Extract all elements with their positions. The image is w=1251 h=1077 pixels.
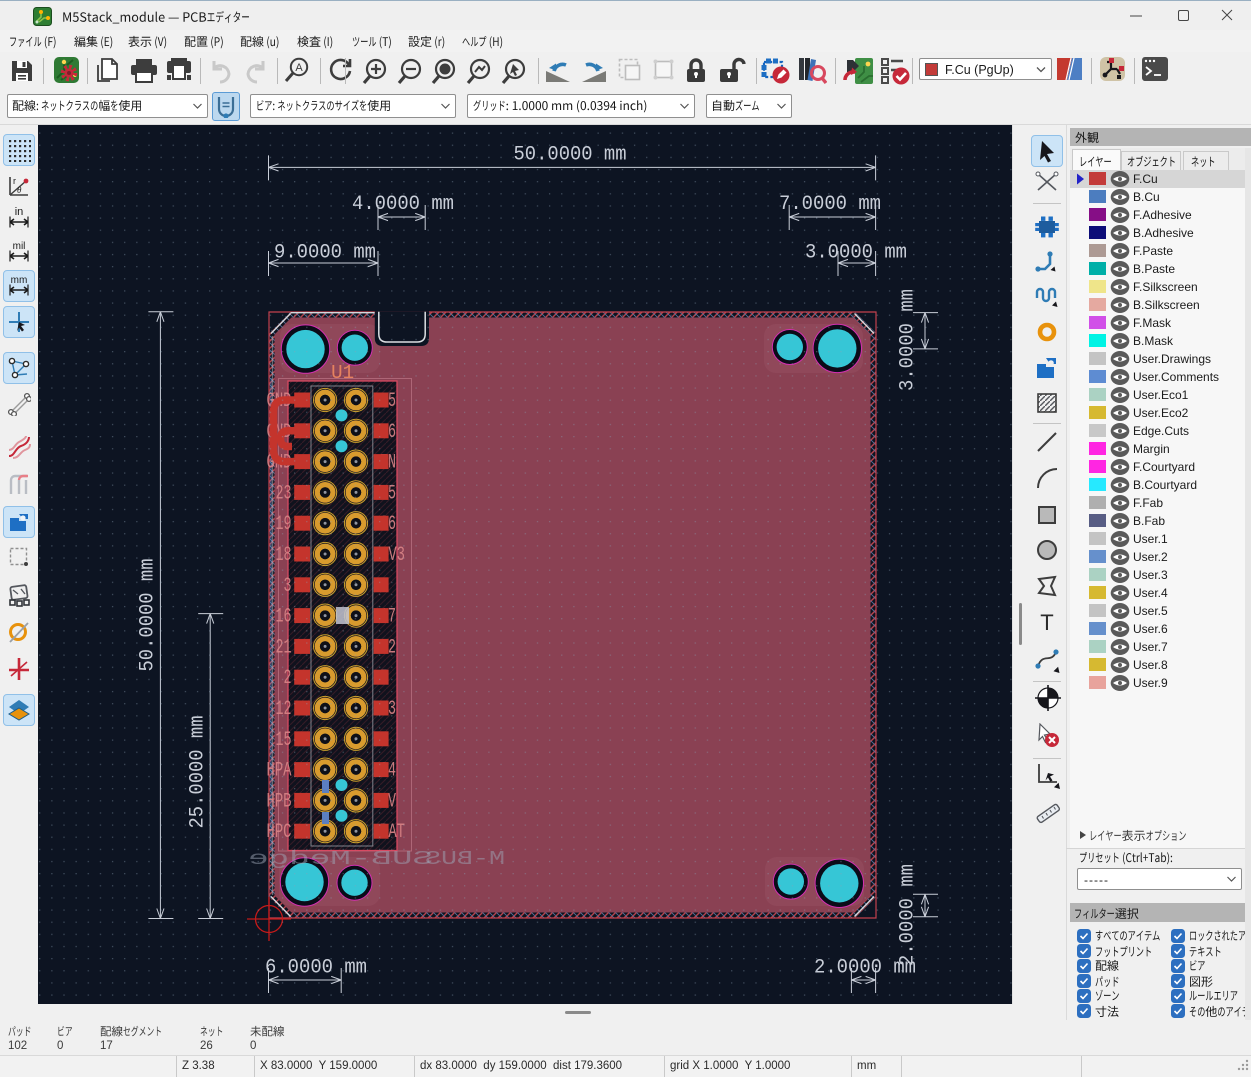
svg-text:mm: mm (11, 275, 28, 286)
svg-text:r: r (13, 176, 16, 186)
svg-text:mil: mil (13, 241, 26, 252)
svg-text:in: in (15, 206, 24, 218)
svg-text:θ: θ (17, 185, 22, 195)
svg-text:A: A (295, 62, 303, 74)
